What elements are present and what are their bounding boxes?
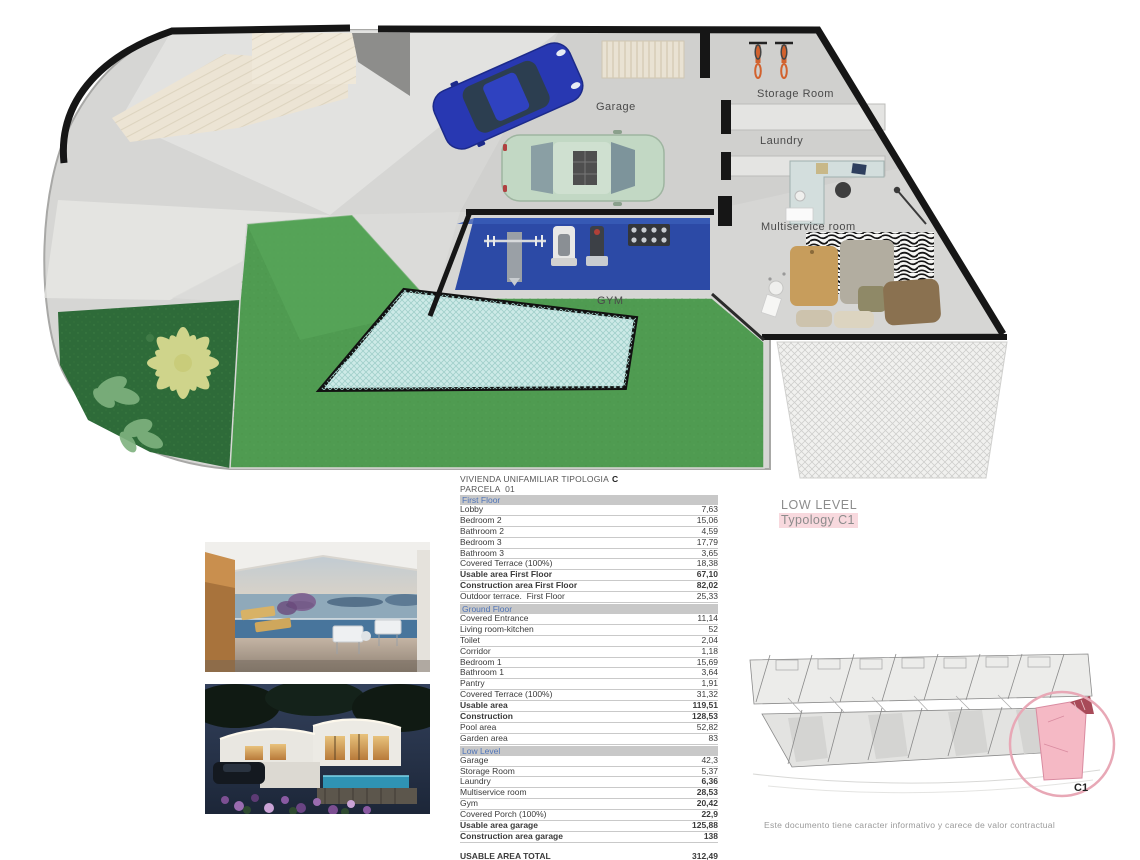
row-label: Pantry xyxy=(460,679,485,689)
table-row: Corridor1,18 xyxy=(460,647,718,658)
row-value: 82,02 xyxy=(697,581,718,591)
row-label: Storage Room xyxy=(460,767,515,777)
table-row: Garage42,3 xyxy=(460,756,718,767)
row-value: 15,06 xyxy=(697,516,718,526)
row-label: Lobby xyxy=(460,505,483,515)
gym-machine xyxy=(551,226,577,266)
row-value: 52 xyxy=(709,625,718,635)
row-label: Usable area garage xyxy=(460,821,538,831)
typology-label: Typology C1 xyxy=(779,513,858,528)
row-value: 312,49 xyxy=(692,852,718,860)
row-label: Living room-kitchen xyxy=(460,625,534,635)
row-value: 5,37 xyxy=(701,767,718,777)
row-label: Garden area xyxy=(460,734,508,744)
row-value: 17,79 xyxy=(697,538,718,548)
row-label: Gym xyxy=(460,799,478,809)
table-row: Bathroom 13,64 xyxy=(460,668,718,679)
laundry-label: Laundry xyxy=(760,135,803,147)
row-label: Covered Terrace (100%) xyxy=(460,690,552,700)
table-row: Outdoor terrace. First Floor25,33 xyxy=(460,592,718,603)
row-label: Usable area First Floor xyxy=(460,570,552,580)
row-value: 3,65 xyxy=(701,549,718,559)
row-value: 15,69 xyxy=(697,658,718,668)
row-value: 18,38 xyxy=(697,559,718,569)
floor-plan xyxy=(0,0,1140,490)
table-row: Toilet2,04 xyxy=(460,636,718,647)
garage-door xyxy=(602,41,684,78)
row-value: 4,59 xyxy=(701,527,718,537)
ground-contour-2 xyxy=(768,780,1093,793)
row-label: Construction xyxy=(460,712,513,722)
table-row: Living room-kitchen52 xyxy=(460,625,718,636)
row-label: Multiservice room xyxy=(460,788,527,798)
row-label: Garage xyxy=(460,756,488,766)
row-value: 11,14 xyxy=(697,614,718,624)
gym-area xyxy=(455,218,710,290)
row-label: Corridor xyxy=(460,647,491,657)
table-row: USABLE AREA TOTAL312,49 xyxy=(460,852,718,860)
row-value: 3,64 xyxy=(701,668,718,678)
table-subtitle: PARCELA 01 xyxy=(460,484,718,494)
row-label: Construction area garage xyxy=(460,832,563,842)
garage-label: Garage xyxy=(596,101,636,113)
row-value: 1,91 xyxy=(701,679,718,689)
dumbbell-rack xyxy=(628,224,670,246)
site-plan: C1 xyxy=(748,652,1120,804)
table-section-header: First Floor xyxy=(460,495,718,505)
row-label: Covered Porch (100%) xyxy=(460,810,546,820)
disclaimer-text: Este documento tiene caracter informativ… xyxy=(764,820,1055,830)
row-value: 1,18 xyxy=(701,647,718,657)
table-row: Construction area garage138 xyxy=(460,832,718,843)
row-value: 2,04 xyxy=(701,636,718,646)
agave-plant xyxy=(147,327,219,399)
page: Garage Storage Room Laundry Multiservice… xyxy=(0,0,1140,860)
render-photo-villa-night xyxy=(205,684,430,814)
row-value: 25,33 xyxy=(697,592,718,602)
row-label: Covered Entrance xyxy=(460,614,529,624)
row-value: 67,10 xyxy=(697,570,718,580)
site-plan-unit-label: C1 xyxy=(1074,782,1088,794)
row-value: 6,36 xyxy=(701,777,718,787)
row-label: Covered Terrace (100%) xyxy=(460,559,552,569)
row-label: Construction area First Floor xyxy=(460,581,577,591)
row-label: Toilet xyxy=(460,636,480,646)
row-label: Bathroom 1 xyxy=(460,668,504,678)
row-value: 119,51 xyxy=(692,701,718,711)
row-value: 22,9 xyxy=(701,810,718,820)
multiservice-room-label: Multiservice room xyxy=(761,221,856,233)
row-value: 7,63 xyxy=(701,505,718,515)
row-label: USABLE AREA TOTAL xyxy=(460,852,551,860)
row-label: Outdoor terrace. First Floor xyxy=(460,592,565,602)
table-row: Bedroom 317,79 xyxy=(460,538,718,549)
table-row: Multiservice room28,53 xyxy=(460,788,718,799)
row-value: 83 xyxy=(709,734,718,744)
green-car xyxy=(502,130,664,206)
row-value: 28,53 xyxy=(697,788,718,798)
area-table-body: First FloorLobby7,63Bedroom 215,06Bathro… xyxy=(460,495,718,860)
table-row: Construction128,53 xyxy=(460,712,718,723)
row-label: Bathroom 2 xyxy=(460,527,504,537)
terrain-hatch xyxy=(777,342,1007,478)
gym-label: GYM xyxy=(597,295,624,307)
row-value: 52,82 xyxy=(697,723,718,733)
table-title: VIVIENDA UNIFAMILIAR TIPOLOGIAC xyxy=(460,474,718,484)
typology-letter: C xyxy=(612,474,618,484)
table-row: Storage Room5,37 xyxy=(460,767,718,778)
row-label: Pool area xyxy=(460,723,496,733)
storage-room-label: Storage Room xyxy=(757,88,834,100)
render-photo-terrace xyxy=(205,542,430,672)
site-plan-row-b xyxy=(762,707,1058,767)
row-label: Laundry xyxy=(460,777,491,787)
row-label: Bedroom 3 xyxy=(460,538,502,548)
row-value: 125,88 xyxy=(692,821,718,831)
row-value: 20,42 xyxy=(697,799,718,809)
row-value: 128,53 xyxy=(692,712,718,722)
row-label: Bedroom 1 xyxy=(460,658,502,668)
garden xyxy=(58,300,240,468)
row-value: 42,3 xyxy=(701,756,718,766)
table-section-header: Low Level xyxy=(460,746,718,756)
row-label: Bedroom 2 xyxy=(460,516,502,526)
row-label: Bathroom 3 xyxy=(460,549,504,559)
area-table: VIVIENDA UNIFAMILIAR TIPOLOGIAC PARCELA … xyxy=(460,474,718,860)
row-value: 31,32 xyxy=(697,690,718,700)
row-value: 138 xyxy=(704,832,718,842)
row-label: Usable area xyxy=(460,701,508,711)
level-label: LOW LEVEL xyxy=(781,498,857,512)
table-row: Garden area83 xyxy=(460,734,718,745)
